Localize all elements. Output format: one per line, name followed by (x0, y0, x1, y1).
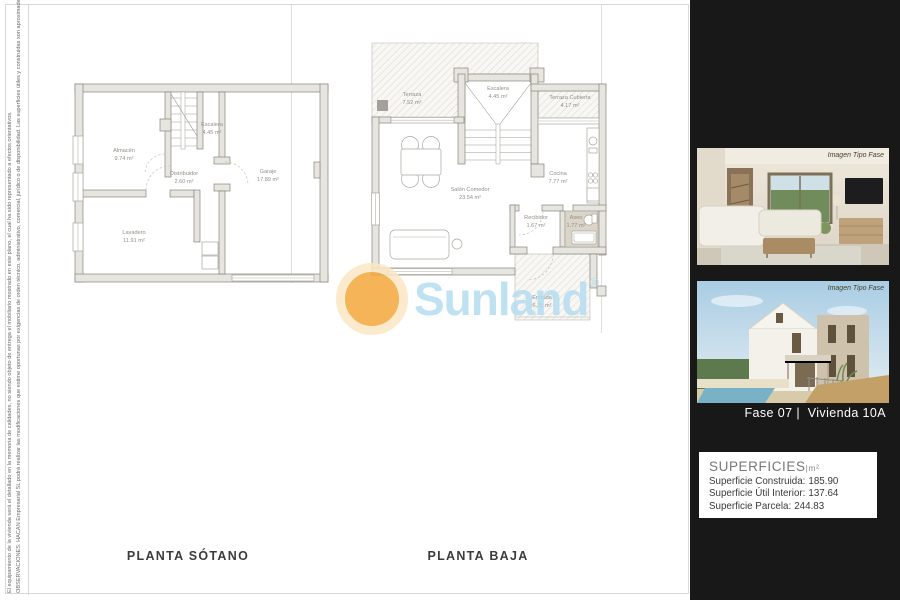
plan-title-baja: PLANTA BAJA (427, 549, 528, 563)
photo-interior-living-room: Imagen Tipo Fase (697, 148, 889, 265)
photo-caption: Imagen Tipo Fase (828, 152, 884, 159)
sotano-stairs (171, 92, 197, 149)
row-value: 244.83 (794, 501, 824, 512)
room-area: 1.77 m² (567, 223, 586, 229)
brochure-sheet: El equipamiento de la vivienda será el d… (0, 0, 900, 600)
disclaimer-line-observaciones: OBSERVACIONES: HACAN Empresarial SL podr… (16, 7, 24, 593)
row-label: Superficie Construida: (709, 476, 805, 487)
exterior-illustration (697, 281, 889, 403)
floorplan-baja: Terraza 7.52 m² Escalera 4.45 m² Terraza… (360, 38, 612, 336)
legal-disclaimer: El equipamiento de la vivienda será el d… (7, 7, 23, 593)
room-area: 6.25 m² (533, 303, 552, 309)
room-area: 23.54 m² (459, 195, 481, 201)
room-label: Aseo (570, 215, 583, 221)
room-area: 7.77 m² (549, 179, 568, 185)
baja-furniture (390, 137, 462, 260)
room-area: 2.60 m² (175, 179, 194, 185)
interior-illustration (697, 148, 889, 265)
room-label: Escalera (487, 86, 510, 92)
superficie-parcela-row: Superficie Parcela:244.83 (709, 501, 877, 512)
room-area: 4.45 m² (489, 94, 508, 100)
phase-label: Fase 07 | Vivienda 10A (745, 406, 886, 420)
room-label: Entrada (532, 295, 552, 301)
room-label: Lavadero (122, 230, 145, 236)
room-label: Distribuidor (170, 171, 198, 177)
room-area: 9.74 m² (115, 156, 134, 162)
room-label: Cocina (549, 171, 567, 177)
row-label: Superficie Parcela: (709, 501, 791, 512)
room-area: 1.67 m² (527, 223, 546, 229)
floorplan-sotano: Almacén 9.74 m² Escalera 4.45 m² Distrib… (62, 72, 330, 300)
superficie-util-row: Superficie Útil Interior:137.64 (709, 488, 877, 499)
sidebar: Imagen Tipo Fase (690, 0, 900, 600)
superficies-title: SUPERFICIES|m² (709, 459, 877, 474)
superficies-box: SUPERFICIES|m² Superficie Construida:185… (699, 452, 877, 518)
photo-exterior-house: Imagen Tipo Fase (697, 281, 889, 403)
sotano-fixtures (202, 242, 218, 269)
terrace-post (377, 100, 388, 111)
disclaimer-divider-line (28, 4, 29, 595)
room-label: Terraza Cubierta (549, 95, 591, 101)
superficie-construida-row: Superficie Construida:185.90 (709, 476, 877, 487)
room-label: Garaje (260, 169, 277, 175)
row-value: 137.64 (808, 488, 838, 499)
sotano-walls (75, 84, 328, 282)
room-area: 4.17 m² (561, 103, 580, 109)
row-value: 185.90 (808, 476, 838, 487)
room-area: 4.45 m² (203, 130, 222, 136)
disclaimer-line-equipamiento: El equipamiento de la vivienda será el d… (7, 7, 15, 593)
room-area: 7.52 m² (403, 100, 422, 106)
superficies-unit: |m² (806, 463, 820, 473)
room-label: Recibidor (524, 215, 548, 221)
plan-title-sotano: PLANTA SÓTANO (127, 549, 249, 563)
baja-kitchen-fixtures (587, 128, 599, 203)
photo-caption: Imagen Tipo Fase (828, 285, 884, 292)
room-label: Salón Comedor (451, 187, 490, 193)
room-label: Escalera (201, 122, 224, 128)
room-area: 11.91 m² (123, 238, 145, 244)
sotano-windows (73, 136, 314, 281)
room-label: Terraza (403, 92, 423, 98)
room-area: 17.89 m² (257, 177, 279, 183)
row-label: Superficie Útil Interior: (709, 488, 805, 499)
superficies-title-text: SUPERFICIES (709, 459, 806, 474)
room-label: Almacén (113, 148, 135, 154)
